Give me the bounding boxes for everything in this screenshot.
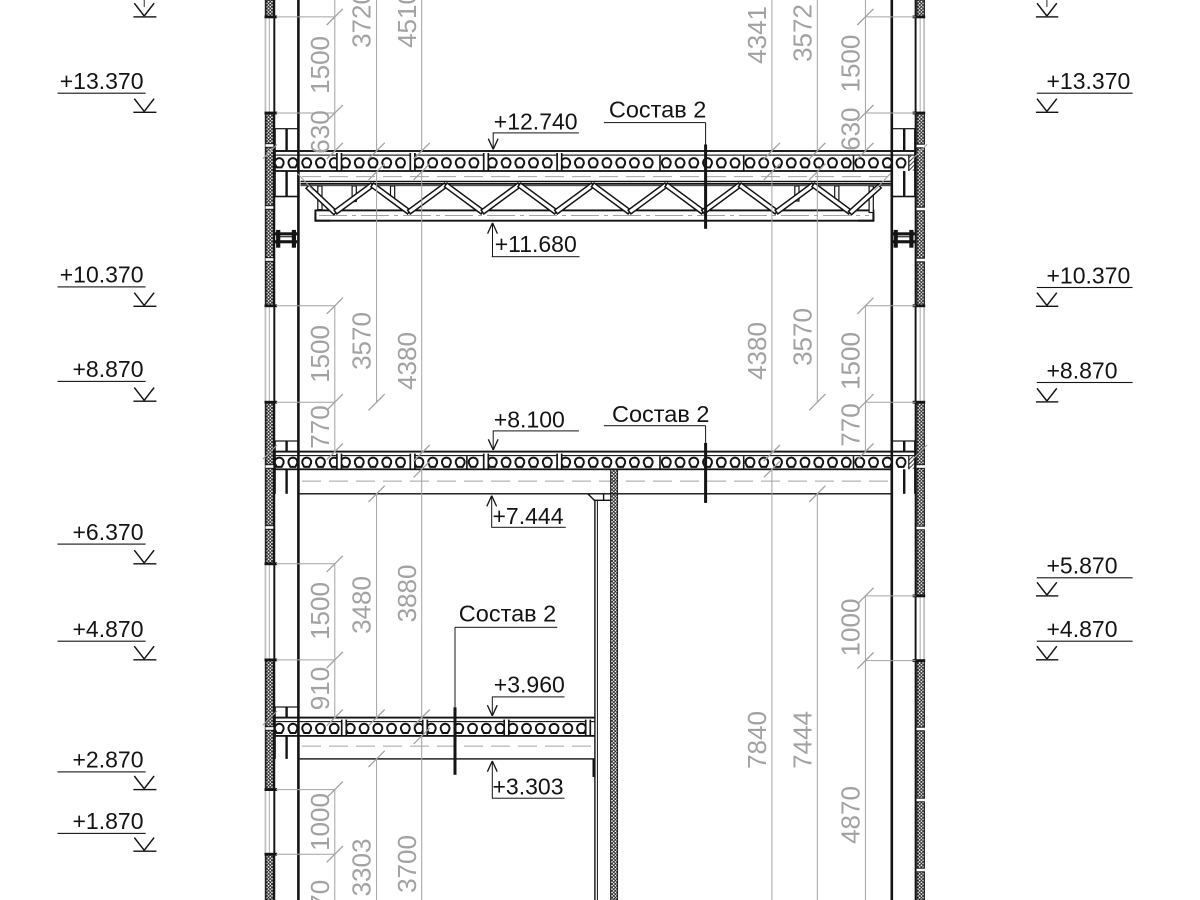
- svg-text:3480: 3480: [347, 576, 377, 634]
- svg-text:1000: 1000: [305, 793, 335, 851]
- svg-text:770: 770: [305, 880, 335, 900]
- svg-text:3570: 3570: [787, 308, 817, 366]
- svg-text:3880: 3880: [392, 565, 422, 623]
- svg-text:1500: 1500: [305, 325, 335, 383]
- svg-text:Состав 2: Состав 2: [459, 601, 556, 627]
- svg-text:+5.870: +5.870: [1047, 553, 1118, 579]
- svg-text:Состав 2: Состав 2: [612, 401, 709, 427]
- svg-text:+6.370: +6.370: [73, 519, 144, 545]
- svg-text:+1.870: +1.870: [73, 808, 144, 834]
- svg-text:1500: 1500: [305, 36, 335, 94]
- svg-text:+3.960: +3.960: [494, 672, 565, 698]
- svg-text:1500: 1500: [835, 332, 865, 390]
- svg-text:+8.870: +8.870: [1047, 357, 1118, 383]
- svg-text:+13.370: +13.370: [1047, 68, 1131, 94]
- svg-text:3570: 3570: [347, 312, 377, 370]
- svg-text:4380: 4380: [392, 332, 422, 390]
- svg-text:3572: 3572: [787, 4, 817, 62]
- svg-text:7840: 7840: [742, 711, 772, 769]
- svg-text:3303: 3303: [347, 839, 377, 897]
- svg-text:+2.870: +2.870: [73, 747, 144, 773]
- svg-text:+8.100: +8.100: [494, 407, 565, 433]
- svg-text:770: 770: [305, 405, 335, 448]
- svg-text:4341: 4341: [742, 6, 772, 64]
- svg-text:+10.370: +10.370: [1047, 262, 1131, 288]
- svg-text:7444: 7444: [787, 711, 817, 769]
- svg-text:Состав 2: Состав 2: [609, 96, 706, 122]
- svg-text:1500: 1500: [835, 35, 865, 93]
- svg-text:4510: 4510: [392, 0, 422, 48]
- svg-text:770: 770: [835, 403, 865, 446]
- svg-text:1500: 1500: [305, 582, 335, 640]
- svg-text:+3.303: +3.303: [493, 774, 564, 800]
- svg-text:+12.740: +12.740: [494, 109, 578, 135]
- svg-text:3720: 3720: [347, 0, 377, 48]
- svg-text:630: 630: [835, 108, 865, 151]
- svg-text:4870: 4870: [835, 786, 865, 844]
- svg-text:4380: 4380: [742, 322, 772, 380]
- svg-text:910: 910: [305, 667, 335, 710]
- svg-text:+11.680: +11.680: [495, 231, 577, 257]
- svg-text:+4.870: +4.870: [1047, 616, 1118, 642]
- svg-text:+4.870: +4.870: [73, 616, 144, 642]
- svg-text:+13.370: +13.370: [60, 68, 144, 94]
- svg-text:1000: 1000: [835, 599, 865, 657]
- svg-text:+8.870: +8.870: [73, 356, 144, 382]
- svg-text:3700: 3700: [392, 835, 422, 893]
- svg-text:+10.370: +10.370: [60, 262, 144, 288]
- svg-text:+7.444: +7.444: [493, 503, 564, 529]
